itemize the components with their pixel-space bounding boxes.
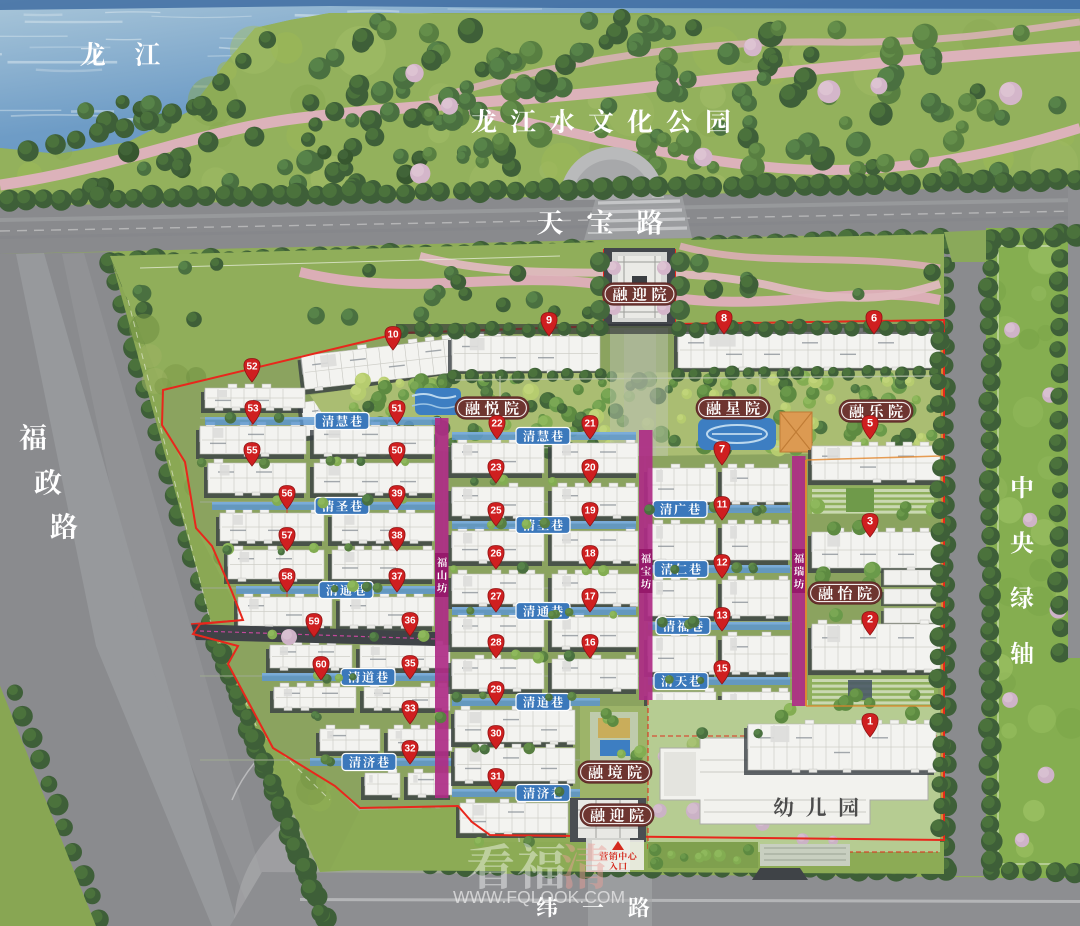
svg-text:38: 38: [391, 531, 403, 542]
svg-text:17: 17: [584, 592, 596, 603]
svg-text:22: 22: [491, 419, 503, 430]
svg-text:35: 35: [404, 659, 416, 670]
svg-text:60: 60: [315, 660, 327, 671]
svg-text:50: 50: [391, 446, 403, 457]
svg-text:1: 1: [867, 716, 873, 728]
svg-text:36: 36: [404, 616, 416, 627]
svg-text:59: 59: [308, 617, 320, 628]
svg-text:55: 55: [246, 446, 258, 457]
svg-text:16: 16: [584, 638, 596, 649]
svg-text:23: 23: [490, 463, 502, 474]
svg-text:9: 9: [546, 315, 552, 327]
svg-text:5: 5: [867, 418, 873, 430]
svg-text:52: 52: [246, 362, 258, 373]
svg-text:12: 12: [716, 558, 728, 569]
svg-text:13: 13: [716, 611, 728, 622]
svg-text:31: 31: [490, 772, 502, 783]
svg-text:20: 20: [584, 463, 596, 474]
svg-text:30: 30: [490, 729, 502, 740]
svg-text:27: 27: [490, 592, 502, 603]
svg-text:58: 58: [281, 572, 293, 583]
svg-text:10: 10: [387, 330, 399, 341]
svg-text:53: 53: [247, 404, 259, 415]
svg-text:6: 6: [871, 313, 877, 325]
svg-text:WWW.FQLOOK.COM: WWW.FQLOOK.COM: [453, 887, 625, 907]
svg-text:29: 29: [490, 685, 502, 696]
svg-text:26: 26: [490, 549, 502, 560]
svg-text:2: 2: [867, 614, 873, 626]
svg-text:25: 25: [490, 506, 502, 517]
svg-text:51: 51: [391, 404, 403, 415]
svg-text:33: 33: [404, 704, 416, 715]
svg-text:7: 7: [719, 444, 725, 456]
svg-text:39: 39: [391, 489, 403, 500]
svg-text:57: 57: [281, 531, 293, 542]
svg-text:8: 8: [721, 313, 727, 325]
svg-text:28: 28: [490, 638, 502, 649]
svg-text:11: 11: [717, 500, 728, 511]
svg-text:15: 15: [716, 664, 728, 675]
svg-text:32: 32: [404, 744, 416, 755]
svg-text:37: 37: [391, 572, 403, 583]
svg-text:18: 18: [584, 549, 596, 560]
svg-text:56: 56: [281, 489, 293, 500]
svg-text:21: 21: [584, 419, 596, 430]
svg-text:3: 3: [867, 516, 873, 528]
svg-text:19: 19: [584, 506, 596, 517]
